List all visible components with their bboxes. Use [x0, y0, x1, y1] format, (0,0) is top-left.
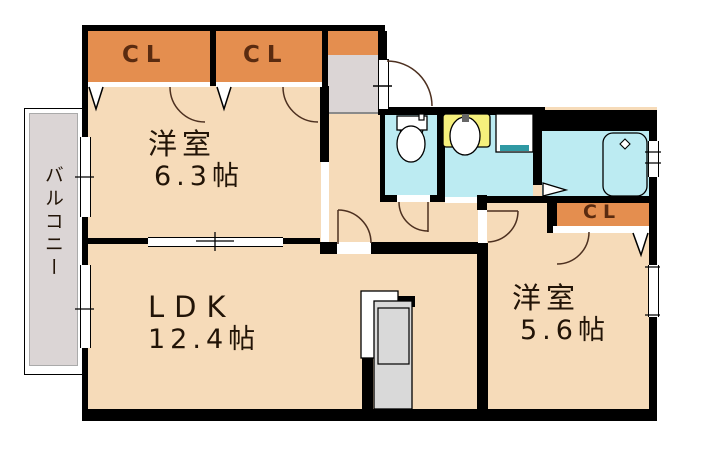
wall-top: [82, 25, 385, 31]
wall-room1-hall: [320, 86, 329, 162]
wall-washroom-corner: [477, 195, 487, 210]
wall-room1-ldk-east: [283, 238, 320, 244]
shoe-cabinet: [328, 31, 378, 55]
wall-kitchen-side: [362, 358, 373, 409]
closet2-opening: [216, 82, 322, 87]
room1-name: 洋室: [148, 128, 244, 161]
wall-room2-north: [487, 196, 650, 203]
wall-kitchen-stub: [397, 296, 415, 307]
wall-bath-top: [540, 110, 657, 131]
entry-door-arc: [387, 61, 432, 106]
opening-room1-hall: [321, 162, 329, 242]
room2-name: 洋室: [512, 282, 610, 315]
closet1-opening: [88, 82, 210, 87]
wall-room1-ldk-west: [88, 238, 148, 244]
window-room1-balcony: [80, 137, 91, 217]
entry-door-leaf: [378, 59, 389, 110]
ldk-size: 12.4帖: [148, 324, 260, 355]
window-ldk-balcony: [80, 265, 91, 348]
room2-label: 洋室 5.6帖: [512, 282, 610, 346]
closet3-opening: [553, 226, 649, 233]
opening-washroom: [445, 197, 477, 203]
door-gap-room2: [478, 210, 487, 243]
floor-plan: バルコニー: [0, 0, 713, 452]
door-gap-toilet: [397, 195, 430, 202]
closet2-label: CL: [243, 42, 289, 68]
toilet-room: [385, 115, 437, 195]
door-gap-hall-ldk: [337, 242, 371, 254]
closet3-label: CL: [583, 202, 621, 224]
wall-toilet-west: [380, 115, 385, 202]
closet1-label: CL: [122, 42, 168, 68]
ldk-label: LDK 12.4帖: [148, 291, 260, 355]
room2-size: 5.6帖: [520, 315, 610, 346]
window-room2: [648, 265, 659, 317]
wall-toilet-south-b: [430, 195, 445, 202]
balcony-label: バルコニー: [41, 165, 63, 280]
ldk-name: LDK: [148, 291, 260, 324]
wall-toilet-washroom: [437, 115, 445, 202]
washroom: [445, 115, 533, 197]
room1-label: 洋室 6.3帖: [148, 128, 244, 192]
window-bathroom: [648, 141, 659, 177]
wall-washroom-bath: [533, 115, 542, 185]
wall-closet-divider-1: [210, 25, 216, 86]
bathroom: [542, 131, 649, 196]
wall-bottom: [82, 409, 657, 421]
wall-entry-jamb: [378, 31, 387, 59]
room1-size: 6.3帖: [154, 161, 244, 192]
entry-genkan: [328, 55, 378, 114]
wall-closet-divider-2: [322, 25, 328, 86]
wall-hall-ldk: [371, 242, 478, 254]
wall-ldk-room2: [477, 243, 488, 409]
wall-wet-top: [378, 107, 545, 115]
wall-toilet-south-a: [385, 195, 397, 202]
sliding-door-room1-ldk: [148, 237, 283, 247]
wall-hall-corner: [320, 242, 337, 254]
